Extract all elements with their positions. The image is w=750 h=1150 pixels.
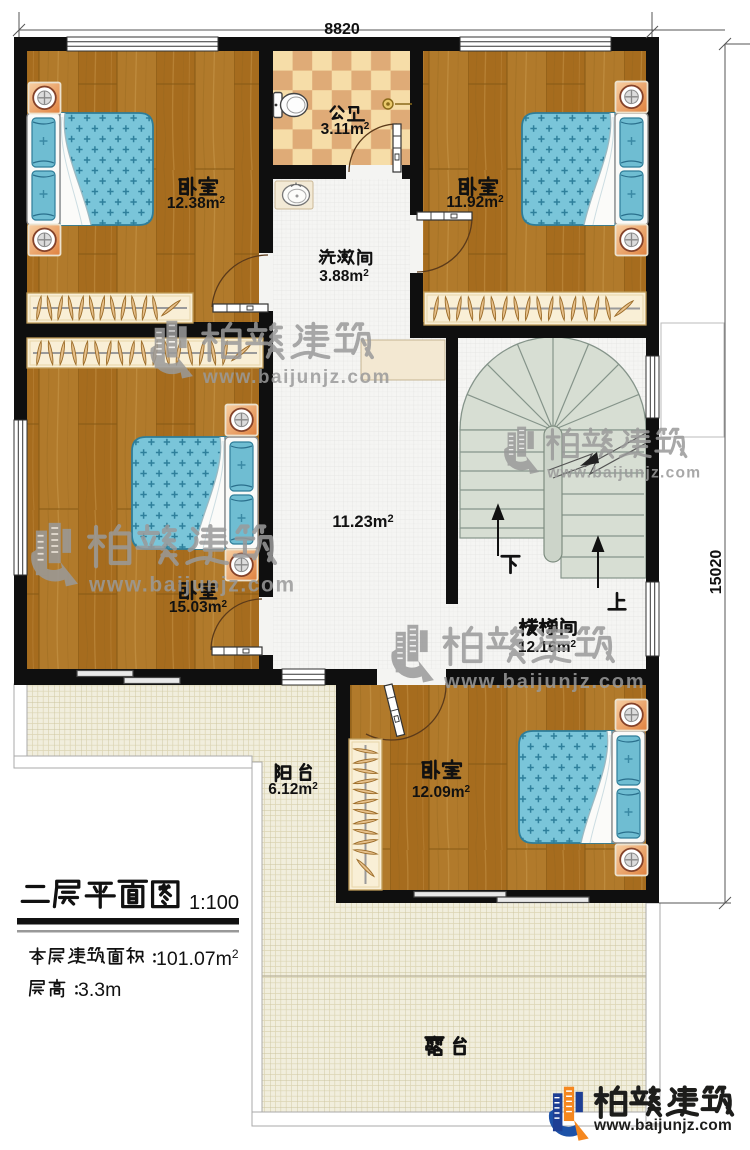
svg-text:15020: 15020 — [708, 550, 725, 595]
svg-text:6.12m2: 6.12m2 — [268, 781, 318, 798]
svg-text:11.23m2: 11.23m2 — [332, 513, 393, 531]
svg-text:15.03m2: 15.03m2 — [169, 599, 228, 616]
svg-text:3.11m2: 3.11m2 — [321, 121, 370, 138]
svg-text:101.07m2: 101.07m2 — [156, 947, 239, 970]
svg-text:www.baijunjz.com: www.baijunjz.com — [546, 465, 701, 482]
svg-text:www.baijunjz.com: www.baijunjz.com — [443, 671, 645, 693]
svg-text:1:100: 1:100 — [189, 892, 239, 914]
svg-text:8820: 8820 — [324, 21, 360, 38]
svg-text:www.baijunjz.com: www.baijunjz.com — [88, 573, 296, 596]
svg-text:12.09m2: 12.09m2 — [412, 784, 471, 801]
svg-text:3.3m: 3.3m — [78, 979, 121, 1001]
svg-text:www.baijunjz.com: www.baijunjz.com — [593, 1117, 734, 1134]
svg-text:11.92m2: 11.92m2 — [446, 194, 504, 211]
svg-text:3.88m2: 3.88m2 — [319, 268, 369, 285]
svg-text:12.38m2: 12.38m2 — [167, 195, 226, 212]
svg-text:www.baijunjz.com: www.baijunjz.com — [202, 367, 391, 388]
